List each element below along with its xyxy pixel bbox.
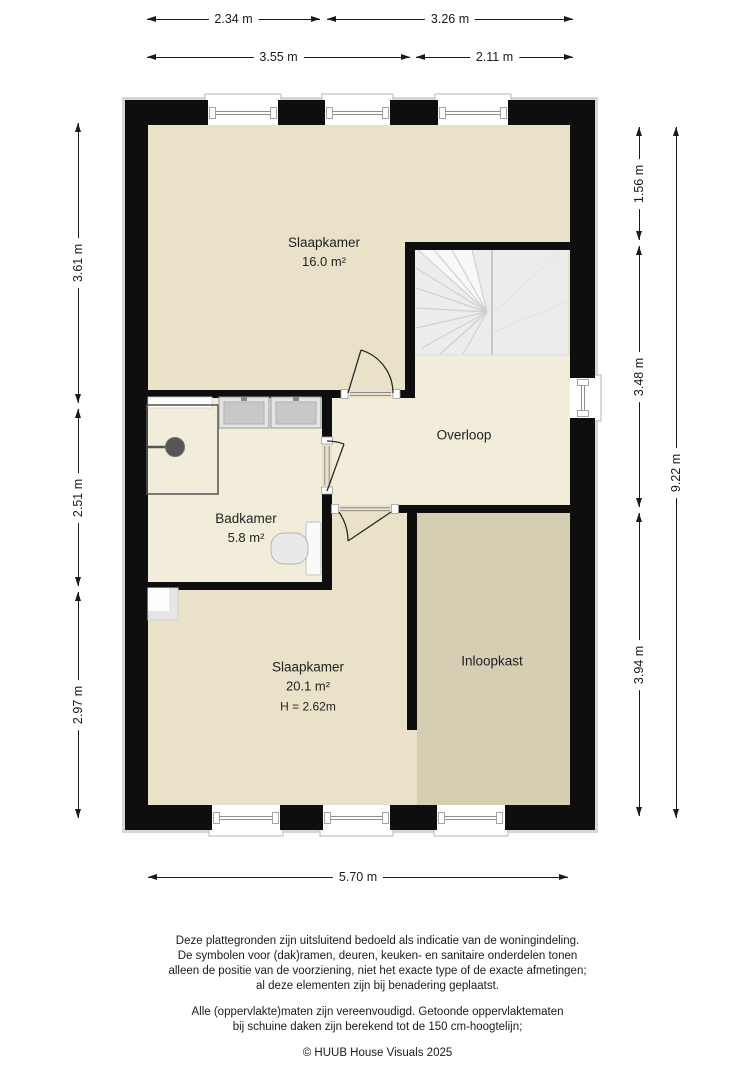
dimension-value: 1.56 m bbox=[632, 158, 646, 208]
dimension-right-1: 1.56 m bbox=[632, 127, 646, 240]
stairs-icon bbox=[415, 250, 568, 355]
room-label-slaapkamer-1: Slaapkamer 16.0 m² bbox=[288, 233, 360, 271]
room-name: Badkamer bbox=[215, 509, 277, 528]
sink-icon bbox=[271, 397, 321, 428]
dimension-right-2: 3.48 m bbox=[632, 246, 646, 507]
room-ceiling-height: H = 2.62m bbox=[272, 698, 344, 717]
dimension-value: 2.11 m bbox=[470, 50, 519, 64]
room-area: 20.1 m² bbox=[272, 677, 344, 696]
footer-disclaimer: Deze plattegronden zijn uitsluitend bedo… bbox=[0, 934, 755, 1061]
dimension-right-3: 3.94 m bbox=[632, 513, 646, 816]
dimension-bottom: 5.70 m bbox=[148, 870, 568, 884]
disclaimer-paragraph-2: Alle (oppervlakte)maten zijn vereenvoudi… bbox=[0, 1005, 755, 1035]
room-label-slaapkamer-2: Slaapkamer 20.1 m² H = 2.62m bbox=[272, 658, 344, 717]
disclaimer-line: al deze elementen zijn bij benadering ge… bbox=[0, 979, 755, 994]
dimension-value: 3.48 m bbox=[632, 351, 646, 401]
room-name: Overloop bbox=[437, 426, 492, 445]
room-area: 5.8 m² bbox=[215, 528, 277, 547]
dimension-top-1b: 3.26 m bbox=[327, 12, 573, 26]
dimension-value: 5.70 m bbox=[333, 870, 383, 884]
disclaimer-line: De symbolen voor (dak)ramen, deuren, keu… bbox=[0, 949, 755, 964]
room-label-overloop: Overloop bbox=[437, 426, 492, 445]
room-label-badkamer: Badkamer 5.8 m² bbox=[215, 509, 277, 547]
disclaimer-paragraph-1: Deze plattegronden zijn uitsluitend bedo… bbox=[0, 934, 755, 994]
disclaimer-line: bij schuine daken zijn berekend tot de 1… bbox=[0, 1020, 755, 1035]
disclaimer-line: alleen de positie van de voorziening, ni… bbox=[0, 964, 755, 979]
dimension-value: 3.94 m bbox=[632, 639, 646, 689]
floor-overloop bbox=[332, 398, 570, 505]
dimension-value: 9.22 m bbox=[669, 447, 683, 497]
disclaimer-line: Deze plattegronden zijn uitsluitend bedo… bbox=[0, 934, 755, 949]
window-icon bbox=[325, 100, 390, 125]
room-name: Slaapkamer bbox=[288, 233, 360, 252]
dimension-value: 2.97 m bbox=[71, 680, 85, 730]
floorplan-page: Slaapkamer 16.0 m² Overloop Badkamer 5.8… bbox=[0, 0, 755, 1067]
dimension-left-1: 3.61 m bbox=[71, 123, 85, 403]
dimension-top-2b: 2.11 m bbox=[416, 50, 573, 64]
window-icon bbox=[438, 100, 508, 125]
copyright-line: © HUUB House Visuals 2025 bbox=[0, 1046, 755, 1061]
dimension-value: 2.51 m bbox=[71, 472, 85, 522]
window-icon bbox=[323, 805, 390, 830]
window-icon bbox=[570, 378, 595, 418]
window-icon bbox=[208, 100, 278, 125]
duct-icon bbox=[148, 588, 178, 620]
disclaimer-line: Alle (oppervlakte)maten zijn vereenvoudi… bbox=[0, 1005, 755, 1020]
dimension-right-total: 9.22 m bbox=[669, 127, 683, 818]
dimension-top-1a: 2.34 m bbox=[147, 12, 320, 26]
dimension-value: 3.26 m bbox=[425, 12, 475, 26]
dimension-left-2: 2.51 m bbox=[71, 409, 85, 586]
dimension-value: 2.34 m bbox=[208, 12, 258, 26]
window-icon bbox=[212, 805, 280, 830]
sink-icon bbox=[219, 397, 269, 428]
room-label-inloopkast: Inloopkast bbox=[461, 652, 523, 671]
dimension-value: 3.55 m bbox=[253, 50, 303, 64]
dimension-value: 3.61 m bbox=[71, 238, 85, 288]
room-name: Slaapkamer bbox=[272, 658, 344, 677]
room-name: Inloopkast bbox=[461, 652, 523, 671]
room-area: 16.0 m² bbox=[288, 252, 360, 271]
dimension-top-2a: 3.55 m bbox=[147, 50, 410, 64]
window-icon bbox=[437, 805, 505, 830]
room-floors bbox=[148, 125, 570, 805]
dimension-left-3: 2.97 m bbox=[71, 592, 85, 818]
shelf-icon bbox=[148, 397, 212, 408]
floor-overloop-upper bbox=[415, 355, 570, 398]
